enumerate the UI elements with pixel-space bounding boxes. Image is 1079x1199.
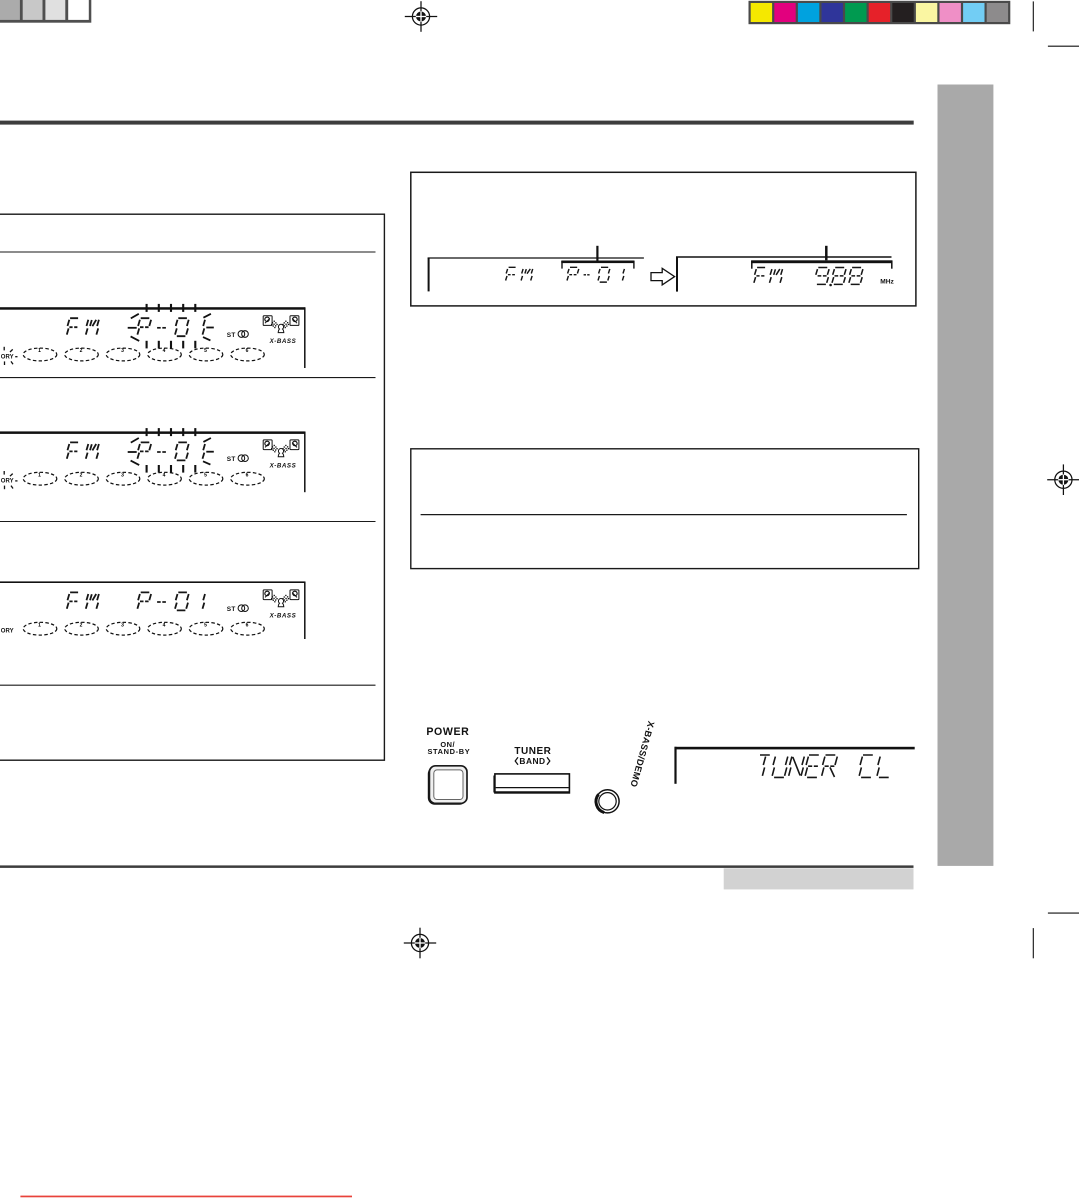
- svg-text:STAND-BY: STAND-BY: [427, 747, 470, 756]
- svg-text:X-BASS: X-BASS: [269, 338, 297, 345]
- svg-text:3: 3: [121, 622, 124, 628]
- svg-text:2: 2: [80, 622, 83, 628]
- svg-text:2: 2: [80, 348, 83, 354]
- svg-text:3: 3: [121, 348, 124, 354]
- svg-text:3: 3: [121, 472, 124, 478]
- svg-text:1: 1: [38, 348, 41, 354]
- svg-text:5: 5: [204, 622, 207, 628]
- svg-text:1: 1: [38, 472, 41, 478]
- svg-text:X-BASS: X-BASS: [269, 462, 297, 469]
- svg-text:ST: ST: [227, 606, 236, 613]
- svg-text:MHz: MHz: [880, 278, 894, 285]
- svg-text:1: 1: [38, 622, 41, 628]
- svg-text:6: 6: [246, 622, 249, 628]
- svg-text:BAND: BAND: [519, 756, 545, 766]
- svg-text:5: 5: [204, 472, 207, 478]
- svg-text:6: 6: [246, 472, 249, 478]
- svg-text:4: 4: [163, 472, 166, 478]
- svg-text:4: 4: [163, 348, 166, 354]
- svg-text:6: 6: [246, 348, 249, 354]
- svg-text:ORY: ORY: [1, 479, 14, 485]
- svg-text:2: 2: [80, 472, 83, 478]
- svg-text:POWER: POWER: [426, 726, 469, 738]
- svg-text:ORY: ORY: [1, 629, 14, 635]
- svg-text:ST: ST: [227, 332, 236, 339]
- svg-text:5: 5: [204, 348, 207, 354]
- svg-text:ST: ST: [227, 456, 236, 463]
- svg-text:4: 4: [163, 622, 166, 628]
- svg-text:X-BASS: X-BASS: [269, 612, 297, 619]
- svg-text:ORY: ORY: [1, 354, 14, 360]
